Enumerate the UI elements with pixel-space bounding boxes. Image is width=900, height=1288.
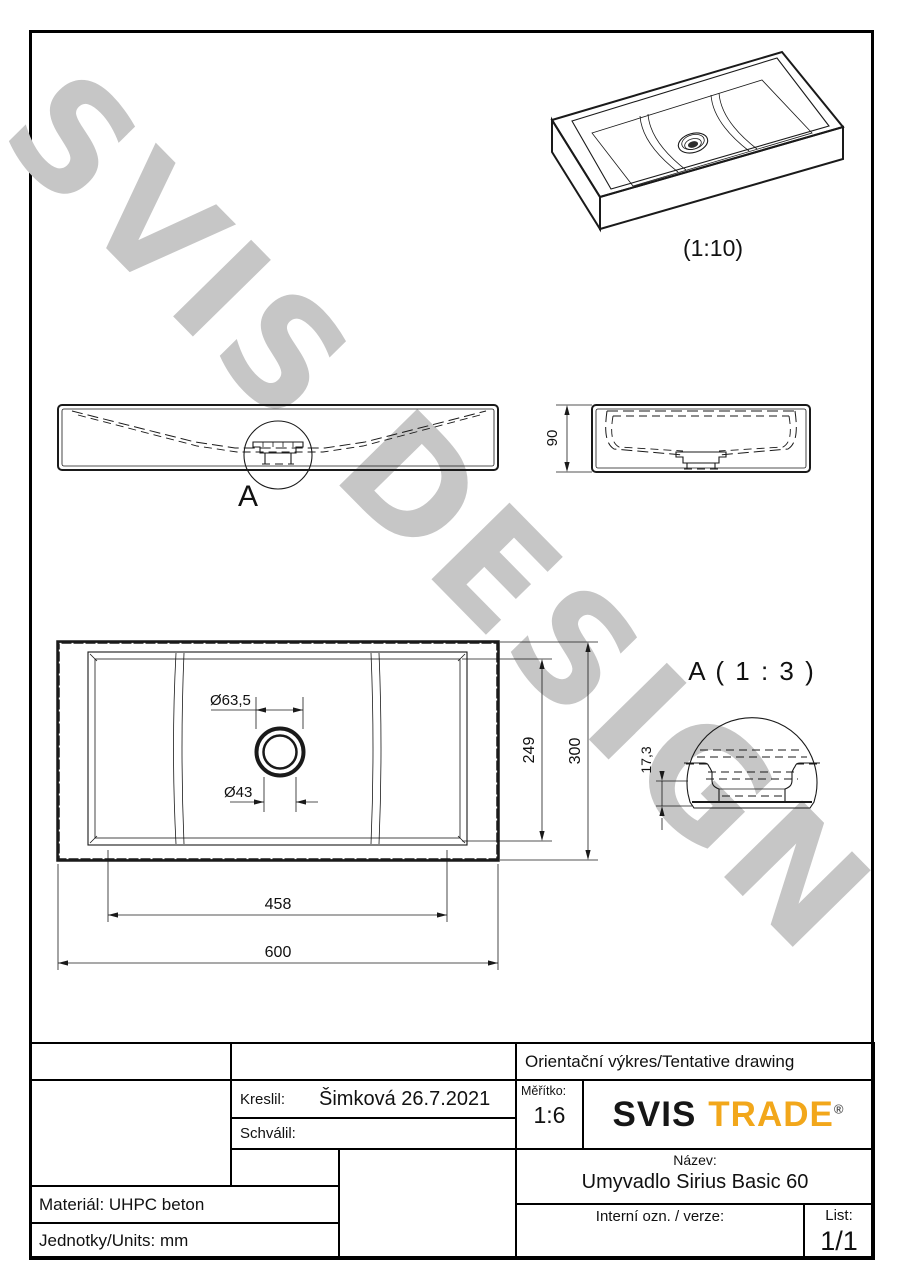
tb-orientation-note: Orientační výkres/Tentative drawing: [515, 1042, 875, 1081]
tb-drawn-by: Kreslil: Šimková 26.7.2021: [230, 1079, 517, 1119]
svis-trade-logo: SVISTRADE®: [613, 1095, 845, 1135]
plan-outline: [58, 642, 498, 860]
tb-material: Materiál: UHPC beton: [29, 1185, 340, 1224]
plan-dim-600: 600: [58, 864, 498, 970]
orientation-note-text: Orientační výkres/Tentative drawing: [517, 1044, 873, 1079]
detail-drain-recess: [684, 763, 820, 802]
front-drain: [253, 442, 303, 464]
name-value: Umyvadlo Sirius Basic 60: [582, 1171, 809, 1194]
side-drain: [676, 452, 726, 469]
drawing-sheet: SVIS DESIGN (1:10): [0, 0, 900, 1288]
internal-label: Interní ozn. / verze:: [596, 1208, 724, 1258]
scale-label: Měřítko:: [517, 1081, 582, 1098]
scale-value: 1:6: [517, 1102, 582, 1129]
logo-trade: TRADE: [708, 1095, 834, 1134]
tb-scale: Měřítko: 1:6: [515, 1079, 584, 1150]
name-label: Název:: [673, 1152, 717, 1168]
iso-view: (1:10): [540, 40, 880, 275]
side-outline: [592, 405, 810, 472]
iso-scale-label: (1:10): [683, 235, 743, 261]
iso-drain-hole: [676, 130, 710, 157]
front-outline: [58, 405, 498, 470]
units-text: Jednotky/Units: mm: [31, 1224, 338, 1258]
front-hidden-basin: [72, 411, 486, 452]
side-dim-90-text: 90: [544, 430, 561, 447]
approved-label: Schválil:: [240, 1125, 296, 1142]
tb-internal-version: Interní ozn. / verze:: [515, 1203, 805, 1260]
plan-dim-drain-inner: Ø43: [224, 777, 318, 812]
plan-dim-300-text: 300: [567, 738, 584, 765]
detail-boundary: [687, 718, 817, 808]
tb-empty-2: [230, 1042, 517, 1081]
sheet-value: 1/1: [820, 1226, 858, 1257]
front-detail-label: A: [238, 480, 258, 513]
plan-dim-600-text: 600: [265, 944, 292, 961]
detail-dim-17-3: 17,3: [638, 746, 692, 830]
side-view: 90: [545, 390, 875, 485]
plan-view: Ø63,5 Ø43 249 300: [40, 636, 610, 980]
detail-view: A ( 1 : 3 ) 17,3: [618, 645, 868, 840]
tb-approved-by: Schválil:: [230, 1117, 517, 1150]
tb-units: Jednotky/Units: mm: [29, 1222, 340, 1260]
tb-empty-4: [338, 1148, 517, 1260]
front-view: A: [40, 395, 510, 515]
detail-circle-A: [244, 421, 312, 489]
side-hidden-basin: [606, 411, 797, 455]
iso-body: [552, 52, 843, 229]
plan-dim-drain-outer: Ø63,5: [210, 692, 303, 729]
logo-registered-mark: ®: [834, 1101, 845, 1116]
plan-dim-drain-inner-text: Ø43: [224, 784, 252, 801]
plan-dim-458-text: 458: [265, 896, 292, 913]
detail-title: A ( 1 : 3 ): [688, 656, 816, 686]
tb-sheet: List: 1/1: [803, 1203, 875, 1260]
plan-drain: [257, 729, 304, 776]
detail-dim-17-3-text: 17,3: [638, 746, 654, 773]
plan-dim-249-text: 249: [521, 737, 538, 764]
drawn-value: Šimková 26.7.2021: [319, 1088, 490, 1111]
detail-basin-floor: [686, 750, 818, 764]
drawn-label: Kreslil:: [240, 1091, 285, 1108]
tb-logo: SVISTRADE®: [582, 1079, 875, 1150]
tb-empty-1: [29, 1042, 232, 1081]
plan-dim-300: 300: [500, 642, 598, 860]
tb-name: Název: Umyvadlo Sirius Basic 60: [515, 1148, 875, 1205]
material-text: Materiál: UHPC beton: [31, 1187, 338, 1222]
side-dim-90: 90: [544, 405, 592, 472]
plan-dim-drain-outer-text: Ø63,5: [210, 692, 251, 709]
plan-dim-249: 249: [462, 659, 552, 841]
tb-empty-left: [29, 1079, 232, 1187]
logo-svis: SVIS: [613, 1095, 697, 1134]
sheet-label: List:: [825, 1207, 853, 1224]
tb-empty-3: [230, 1148, 340, 1187]
